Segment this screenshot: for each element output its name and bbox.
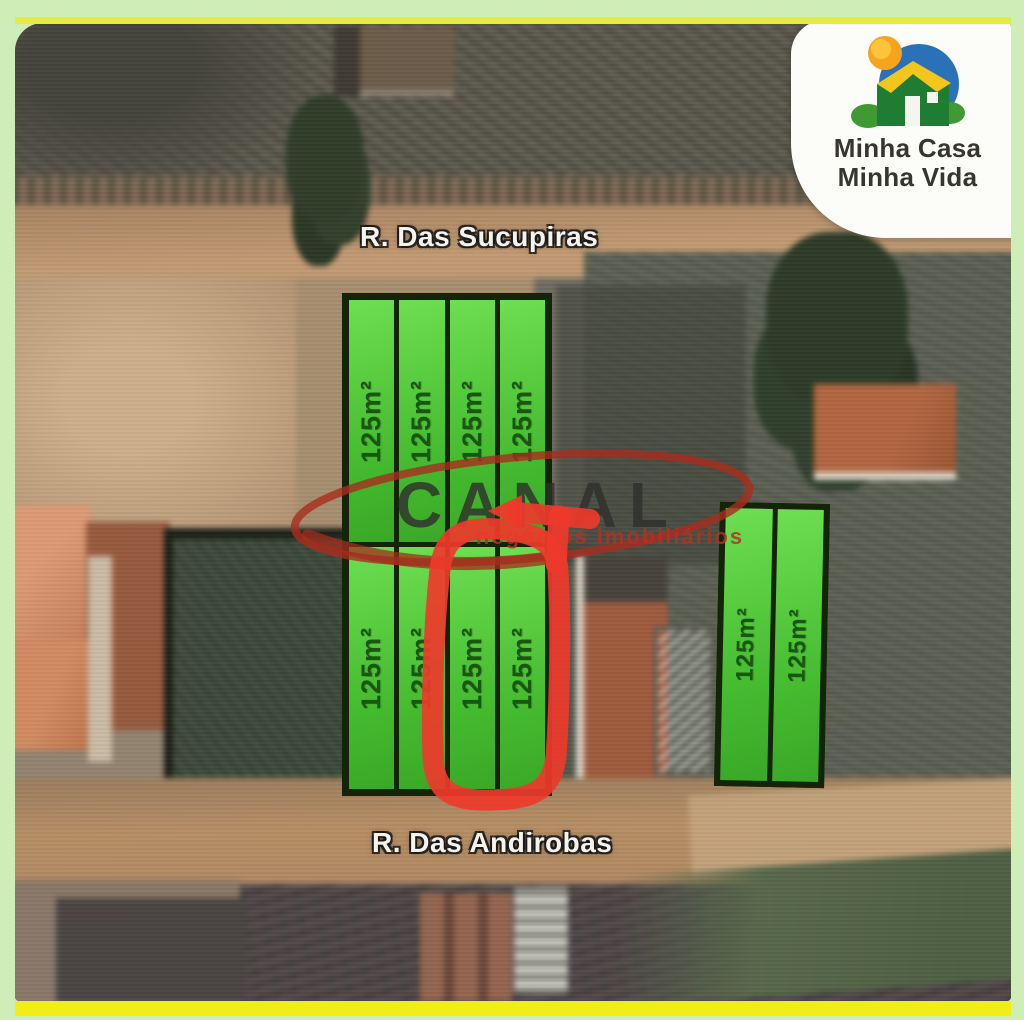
- house-right-orange-roof: [814, 384, 956, 480]
- lot-east-2: 125m²: [772, 509, 824, 782]
- satellite-photo: 125m² 125m² 125m² 125m² 125m² 125m² 125m…: [15, 23, 1011, 1001]
- lot-area-label: 125m²: [507, 379, 538, 462]
- lot-north-4: 125m²: [500, 300, 545, 542]
- house-left-orange-roof-1: [15, 505, 90, 643]
- building-top-middle: [334, 26, 454, 96]
- house-left-walkway: [88, 556, 112, 762]
- lot-area-label: 125m²: [406, 379, 437, 462]
- terrain-field-right-shadow: [556, 285, 746, 565]
- program-badge-line2: Minha Vida: [838, 163, 978, 192]
- frame-yellow-line-top: [15, 17, 1011, 24]
- minha-casa-minha-vida-house-icon: [847, 32, 969, 134]
- lot-south-2: 125m²: [399, 547, 444, 789]
- frame-yellow-bar-bottom: [15, 1001, 1011, 1016]
- lot-east-1: 125m²: [720, 508, 772, 781]
- program-badge-line1: Minha Casa: [834, 134, 982, 163]
- house-left-orange-roof-2: [15, 640, 96, 750]
- lot-north-2: 125m²: [399, 300, 444, 542]
- tree-cluster-right: [766, 232, 908, 407]
- lot-area-label: 125m²: [507, 626, 538, 709]
- lot-south-4: 125m²: [500, 547, 545, 789]
- lot-area-label: 125m²: [731, 607, 761, 682]
- terrain-scrub-dark-corner: [15, 23, 310, 190]
- lot-south-1: 125m²: [349, 547, 394, 789]
- fenced-green-yard-center: [164, 528, 351, 789]
- lot-south-3: 125m²: [450, 547, 495, 789]
- lot-area-label: 125m²: [783, 608, 813, 683]
- lot-area-label: 125m²: [457, 379, 488, 462]
- lot-area-label: 125m²: [457, 626, 488, 709]
- terrain-bottom-left-dark: [56, 898, 246, 1001]
- street-label-bottom: R. Das Andirobas: [372, 827, 612, 859]
- lot-block-main: 125m² 125m² 125m² 125m² 125m² 125m² 125m…: [342, 293, 552, 796]
- white-rubble-bottom: [514, 888, 568, 994]
- lot-area-label: 125m²: [356, 626, 387, 709]
- lot-block-east: 125m² 125m²: [714, 502, 830, 788]
- lot-north-1: 125m²: [349, 300, 394, 542]
- swimming-pool: [654, 626, 714, 776]
- program-badge-card: Minha Casa Minha Vida: [791, 23, 1011, 238]
- lot-north-3: 125m²: [450, 300, 495, 542]
- street-label-top: R. Das Sucupiras: [360, 221, 598, 253]
- lot-area-label: 125m²: [356, 379, 387, 462]
- tree-cluster-top: [286, 95, 364, 223]
- brick-structure-bottom: [420, 893, 512, 1001]
- lot-area-label: 125m²: [406, 626, 437, 709]
